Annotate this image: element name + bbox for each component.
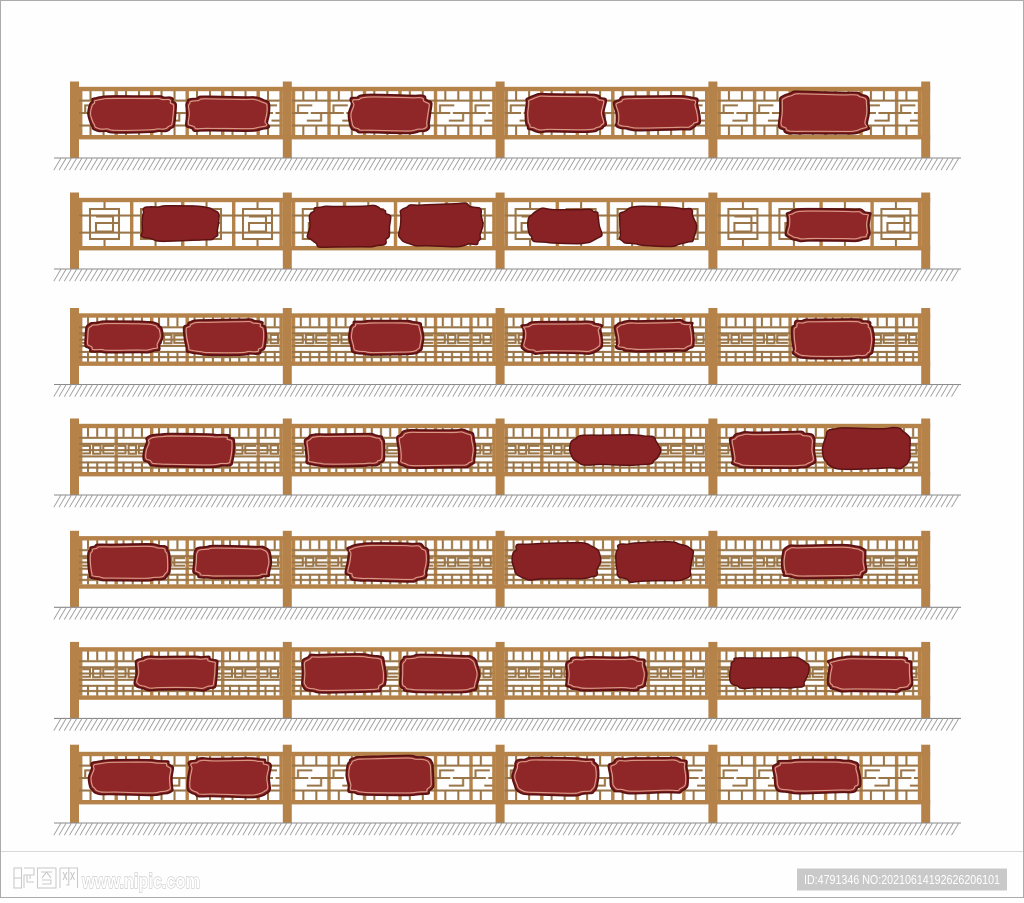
svg-text:www.nipic.com: www.nipic.com [81, 871, 200, 893]
svg-text:ID:4791346 NO:2021061419262620: ID:4791346 NO:20210614192626206101 [804, 872, 1000, 887]
